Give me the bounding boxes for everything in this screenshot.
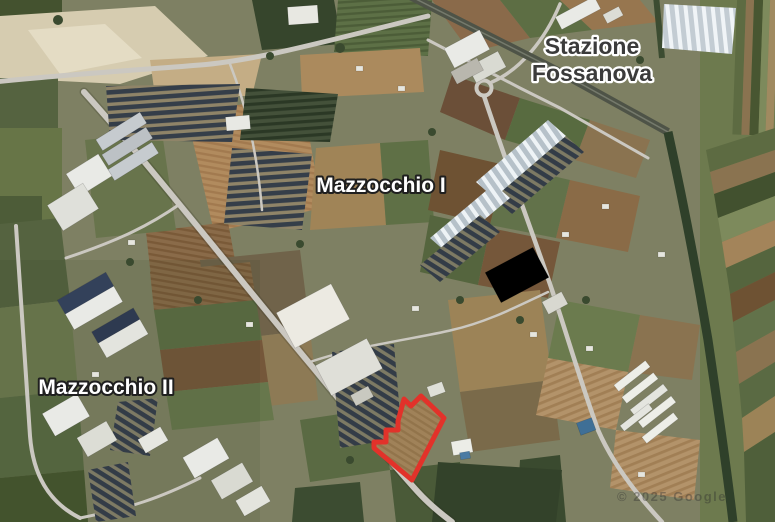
map-canvas: Stazione Fossanova Mazzocchio I Mazzocch… — [0, 0, 775, 522]
greenhouse-block-northeast — [662, 4, 736, 54]
right-edge-strip-fields — [700, 0, 775, 522]
pool — [460, 451, 471, 460]
google-watermark: © 2025 Google — [617, 489, 727, 504]
satellite-map-view[interactable]: Stazione Fossanova Mazzocchio I Mazzocch… — [0, 0, 775, 522]
label-stazione-line1: Stazione — [545, 33, 640, 59]
label-stazione-line2: Fossanova — [532, 60, 652, 86]
label-mazzocchio-ii: Mazzocchio II — [38, 376, 173, 399]
label-mazzocchio-i: Mazzocchio I — [316, 174, 446, 197]
